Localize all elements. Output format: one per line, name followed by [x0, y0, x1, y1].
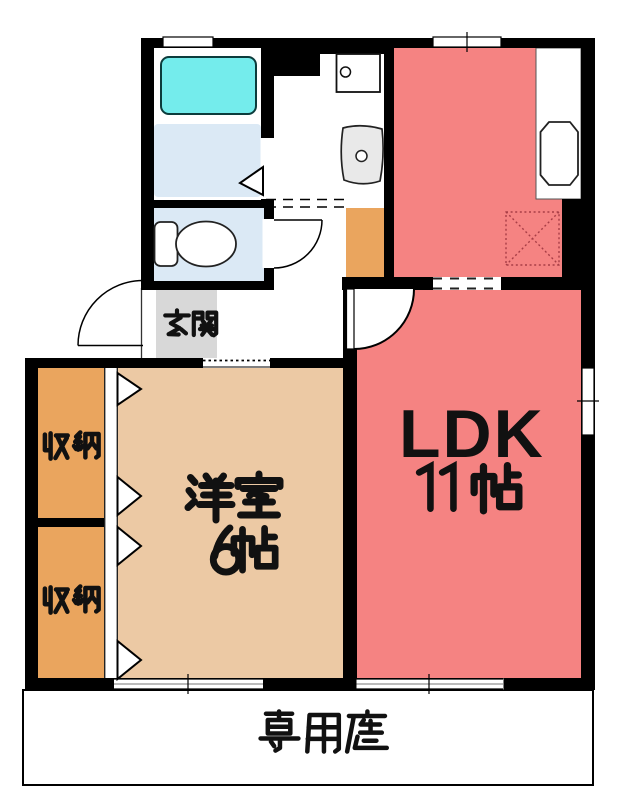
svg-text:LDK: LDK: [399, 396, 545, 472]
